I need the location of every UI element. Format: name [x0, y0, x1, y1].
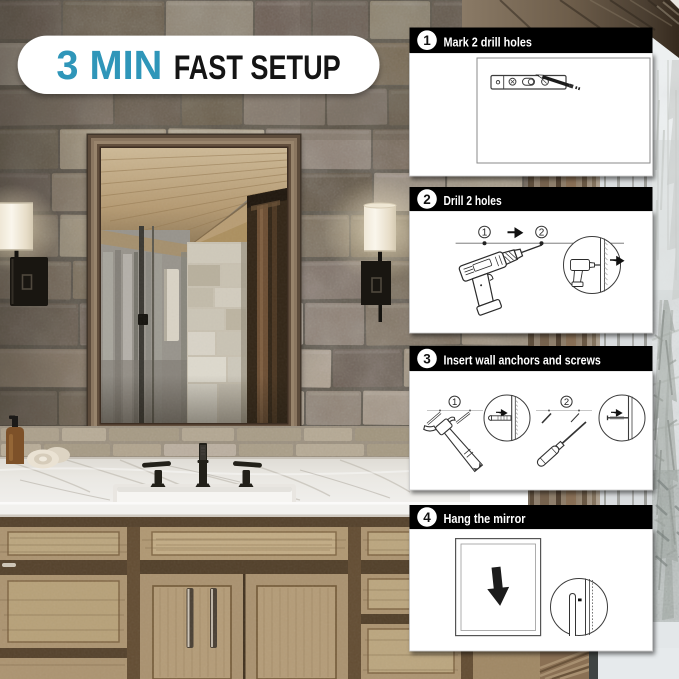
- svg-text:1: 1: [423, 33, 431, 48]
- svg-text:FAST SETUP: FAST SETUP: [174, 49, 341, 87]
- svg-text:1: 1: [482, 228, 488, 239]
- svg-text:3 MIN: 3 MIN: [56, 42, 162, 88]
- svg-text:2: 2: [423, 192, 431, 207]
- svg-text:Drill 2 holes: Drill 2 holes: [444, 193, 502, 208]
- svg-text:Mark 2 drill holes: Mark 2 drill holes: [444, 35, 532, 50]
- svg-text:2: 2: [564, 397, 569, 408]
- svg-text:1: 1: [452, 397, 457, 408]
- svg-text:Hang the mirror: Hang the mirror: [444, 511, 526, 526]
- svg-text:Insert wall anchors and screws: Insert wall anchors and screws: [444, 353, 601, 368]
- svg-text:2: 2: [539, 228, 545, 239]
- svg-text:3: 3: [423, 351, 431, 366]
- svg-text:4: 4: [423, 510, 431, 525]
